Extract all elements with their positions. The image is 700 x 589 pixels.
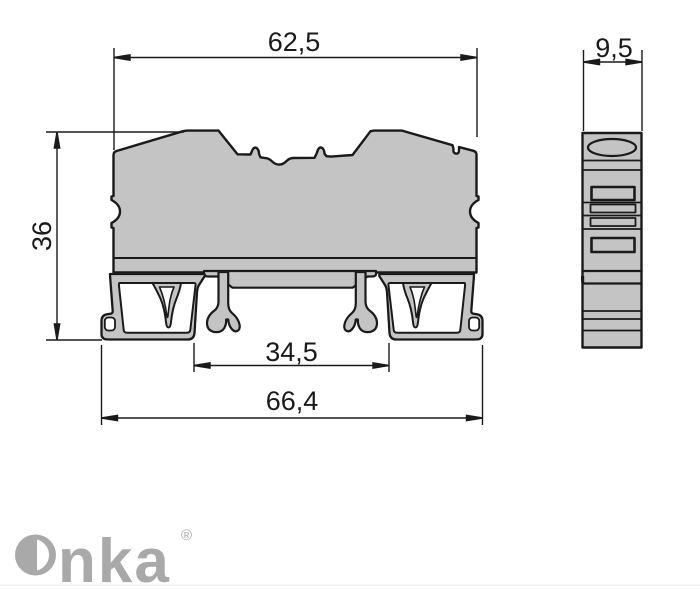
registered-trademark-icon: ® <box>181 527 192 544</box>
dim-value-rail-inner-width: 34,5 <box>265 337 318 367</box>
side-view <box>581 133 642 348</box>
technical-drawing: 62,5 9,5 36 34,5 <box>0 0 700 589</box>
brand-logo: nka ® <box>15 527 192 589</box>
bottom-edge-line <box>0 585 700 586</box>
dim-value-side-width: 9,5 <box>595 33 633 63</box>
arrowhead <box>194 363 210 368</box>
arrowhead <box>54 324 59 340</box>
dimension-side-width: 9,5 <box>584 33 643 131</box>
arrowhead <box>54 132 59 148</box>
dim-value-front-height: 36 <box>27 221 57 251</box>
rail-foot-left <box>102 272 240 340</box>
dim-value-front-bottom-width: 66,4 <box>266 386 319 416</box>
logo-wordmark: nka <box>58 527 171 589</box>
side-slot-upper <box>592 187 635 200</box>
side-slot-thin-b <box>591 218 636 226</box>
drawing-canvas: 62,5 9,5 36 34,5 <box>0 0 700 589</box>
terminal-body-profile <box>112 131 479 273</box>
rail-channel-shelf <box>204 271 376 288</box>
side-slot-lower <box>592 238 635 252</box>
side-edge-notch <box>581 276 584 283</box>
clip-notch <box>105 318 115 331</box>
arrowhead <box>373 363 389 368</box>
arrowhead <box>461 55 477 60</box>
arrowhead <box>114 55 130 60</box>
arrowhead <box>467 415 483 420</box>
rail-foot-right <box>344 272 482 340</box>
front-view <box>102 131 483 340</box>
dim-value-front-top-width: 62,5 <box>268 27 321 57</box>
dimension-rail-inner-width: 34,5 <box>194 337 389 372</box>
side-slot-thin-a <box>591 205 636 213</box>
arrowhead <box>102 415 118 420</box>
logo-o-icon <box>15 535 56 576</box>
